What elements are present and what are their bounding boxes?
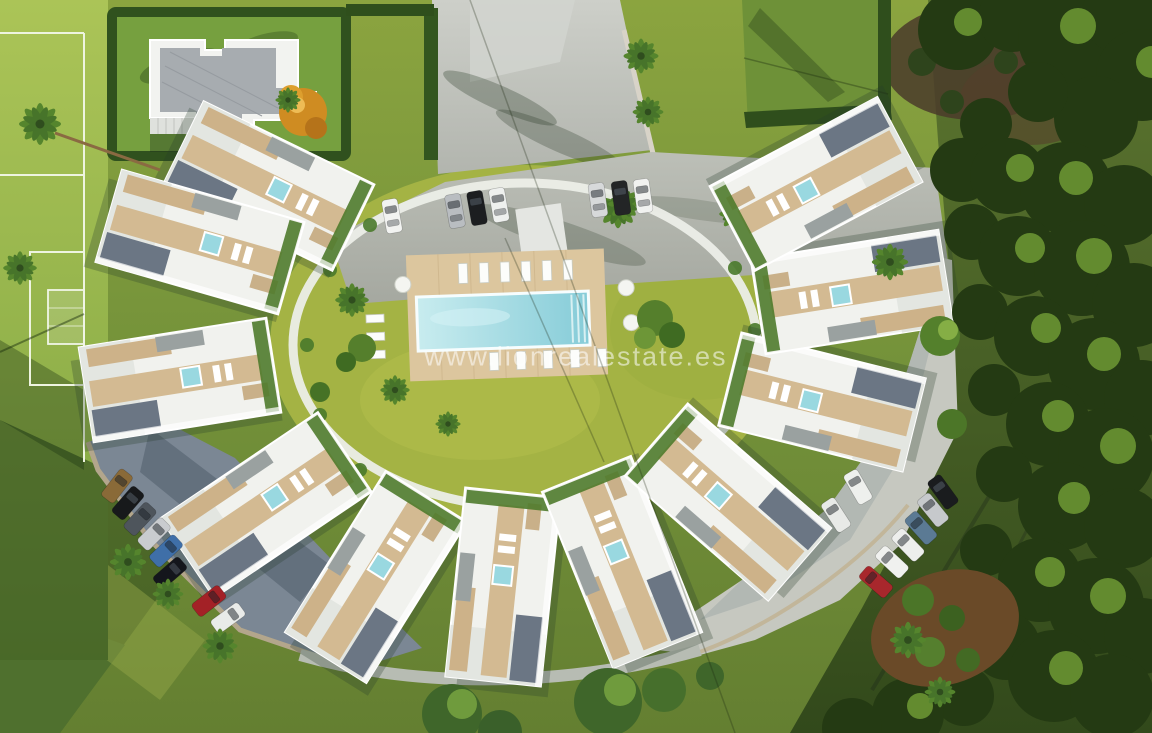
hedge [346, 4, 434, 16]
palm-tree [890, 622, 926, 658]
palm-tree [435, 411, 460, 436]
aerial-render: www.lionrealestate.es [0, 0, 1152, 733]
palm-tree [153, 579, 184, 610]
building-cluster [444, 488, 568, 698]
hedge [424, 8, 438, 160]
palm-tree [110, 544, 146, 580]
sports-field [0, 0, 108, 660]
palm-tree [633, 97, 664, 128]
palm-tree [380, 375, 409, 404]
tree [937, 409, 967, 439]
palm-tree [925, 677, 956, 708]
palm-tree [19, 103, 61, 145]
scene-canvas [0, 0, 1152, 733]
palm-tree [203, 629, 238, 664]
palm-tree [3, 251, 37, 285]
palm-tree [335, 283, 369, 317]
palm-tree [275, 87, 300, 112]
palm-tree [872, 244, 908, 280]
palm-tree [624, 39, 659, 74]
